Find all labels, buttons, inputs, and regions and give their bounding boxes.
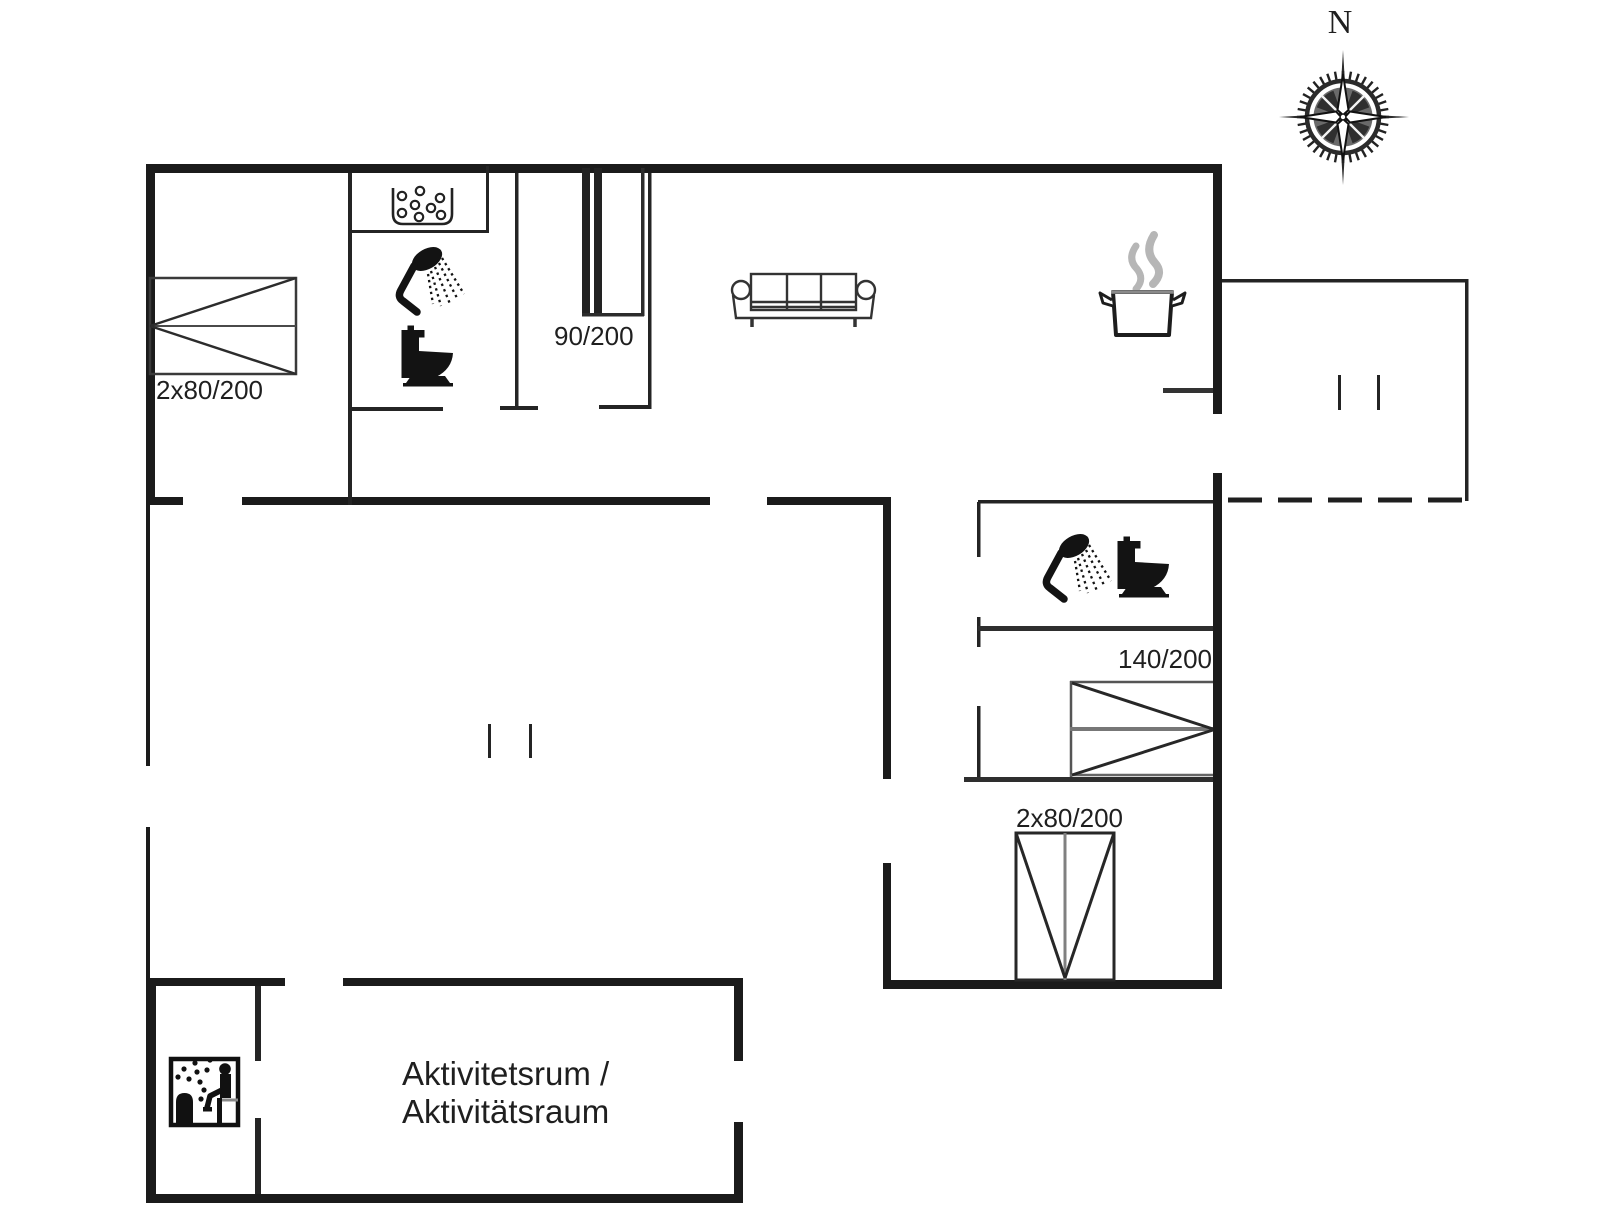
svg-text:2x80/200: 2x80/200	[1016, 803, 1123, 833]
svg-text:140/200: 140/200	[1118, 644, 1212, 674]
svg-text:N: N	[1328, 4, 1353, 41]
svg-text:90/200: 90/200	[554, 321, 634, 351]
svg-text:2x80/200: 2x80/200	[156, 375, 263, 405]
svg-text:Aktivitetsrum /: Aktivitetsrum /	[402, 1055, 610, 1092]
svg-text:Aktivitätsraum: Aktivitätsraum	[402, 1093, 609, 1130]
